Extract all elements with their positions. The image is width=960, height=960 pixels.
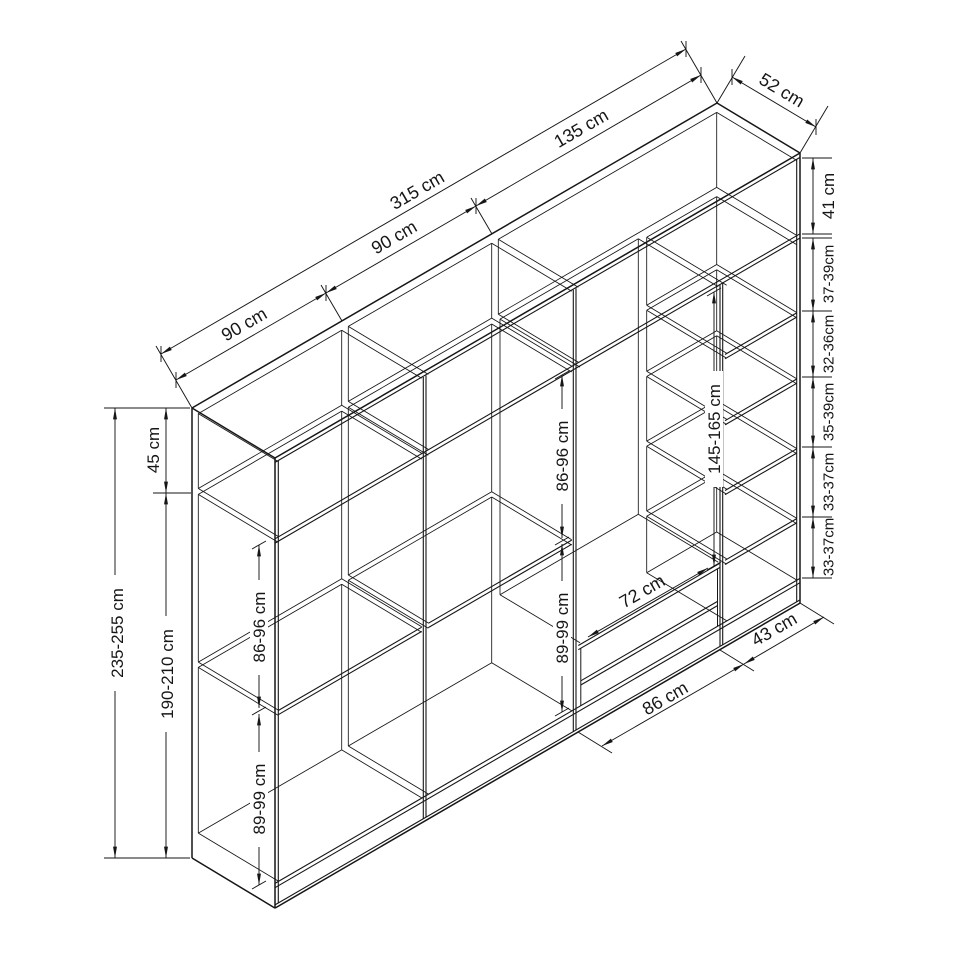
dim-col2-lower-height: 89-99 cm xyxy=(553,593,572,664)
dim-shelf-gap-5: 33-37cm xyxy=(820,518,837,576)
dim-col1-upper-height: 86-96 cm xyxy=(250,592,269,663)
dimension-lines xyxy=(104,41,834,889)
dim-body-height: 190-210 cm xyxy=(158,629,177,719)
wardrobe-dimension-diagram: 90 cm 90 cm 135 cm 315 cm 52 cm 45 cm 23… xyxy=(0,0,960,960)
diagram-canvas: 90 cm 90 cm 135 cm 315 cm 52 cm 45 cm 23… xyxy=(0,0,960,960)
dim-col2-upper-height: 86-96 cm xyxy=(553,421,572,492)
dim-width-overall: 315 cm xyxy=(387,167,448,214)
dim-shelf-gap-3: 35-39cm xyxy=(820,383,837,441)
dim-shelf-gap-2: 32-36cm xyxy=(820,315,837,373)
dim-shelf-gap-4: 33-37cm xyxy=(820,453,837,511)
dim-top-section-height: 45 cm xyxy=(144,427,163,473)
dim-shelf-gap-1: 37-39cm xyxy=(820,245,837,303)
wardrobe-wireframe xyxy=(192,103,800,908)
dim-topbox-interior-height: 41 cm xyxy=(819,173,838,219)
dim-hanging-bottom-width: 86 cm xyxy=(639,677,691,719)
dim-total-height: 235-255 cm xyxy=(108,588,127,678)
dim-depth: 52 cm xyxy=(756,69,808,111)
dim-width-segment-1: 90 cm xyxy=(218,303,270,345)
dim-width-segment-2: 90 cm xyxy=(368,216,420,258)
dim-hanging-height: 145-165 cm xyxy=(705,384,724,474)
dimension-labels: 90 cm 90 cm 135 cm 315 cm 52 cm 45 cm 23… xyxy=(108,69,838,834)
dim-col1-lower-height: 89-99 cm xyxy=(250,764,269,835)
